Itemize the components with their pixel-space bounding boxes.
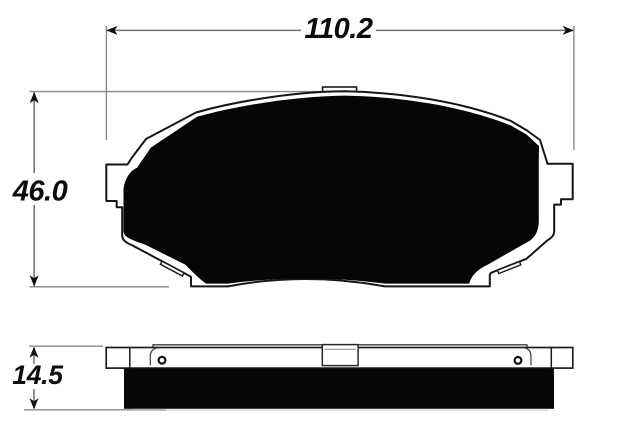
svg-text:110.2: 110.2 — [305, 13, 373, 45]
svg-text:46.0: 46.0 — [12, 175, 68, 207]
svg-text:14.5: 14.5 — [12, 360, 64, 390]
